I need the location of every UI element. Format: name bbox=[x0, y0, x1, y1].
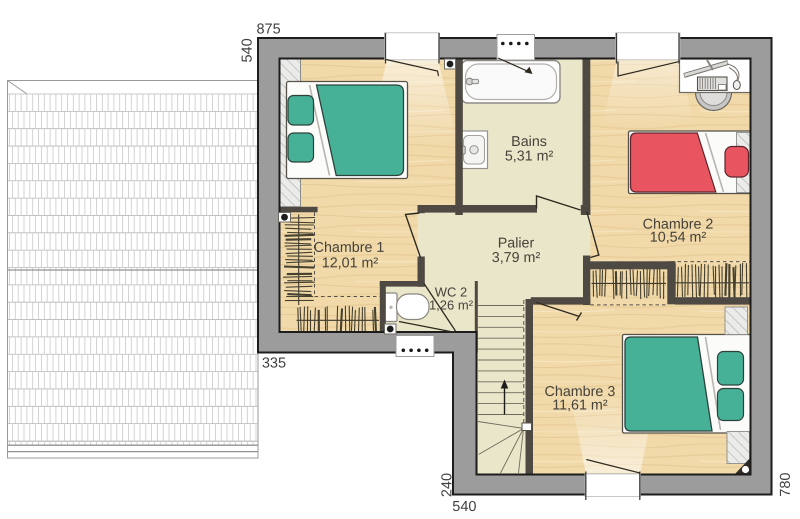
svg-text:12,01 m²: 12,01 m² bbox=[322, 255, 379, 271]
svg-text:875: 875 bbox=[256, 21, 280, 37]
svg-text:1,26 m²: 1,26 m² bbox=[429, 297, 474, 312]
svg-text:5,31 m²: 5,31 m² bbox=[505, 149, 554, 165]
svg-text:Chambre 1: Chambre 1 bbox=[314, 240, 385, 256]
svg-text:10,54 m²: 10,54 m² bbox=[650, 230, 707, 246]
svg-text:11,61 m²: 11,61 m² bbox=[552, 398, 608, 414]
svg-text:3,79 m²: 3,79 m² bbox=[492, 250, 541, 266]
svg-text:335: 335 bbox=[262, 355, 286, 371]
svg-text:540: 540 bbox=[452, 499, 476, 514]
svg-text:780: 780 bbox=[778, 473, 794, 497]
svg-text:540: 540 bbox=[240, 38, 256, 62]
svg-text:240: 240 bbox=[439, 473, 455, 497]
